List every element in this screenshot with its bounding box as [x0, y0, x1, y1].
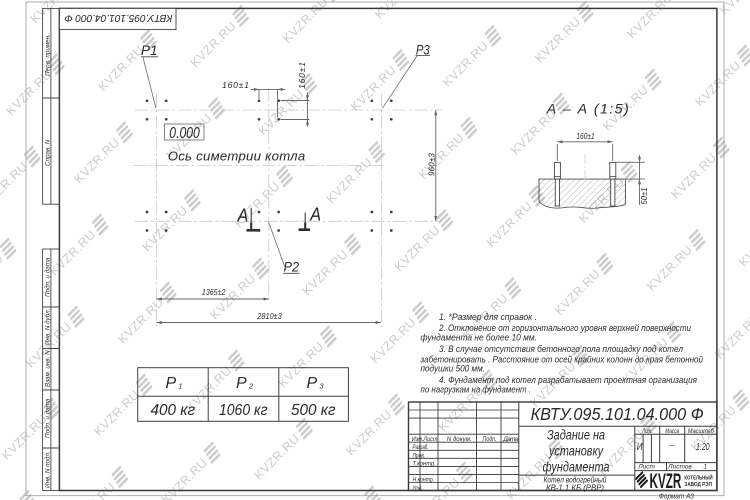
svg-text:2810±3: 2810±3	[256, 312, 282, 321]
svg-text:Инв. N подл.: Инв. N подл.	[44, 451, 52, 488]
svg-text:Н.контр.: Н.контр.	[413, 477, 435, 484]
svg-text:Ось симетрии котла: Ось симетрии котла	[168, 149, 306, 164]
svg-text:Подп. и дата: Подп. и дата	[44, 257, 52, 297]
svg-text:0.000: 0.000	[169, 125, 200, 142]
svg-text:1:20: 1:20	[696, 441, 710, 453]
svg-text:Утв.: Утв.	[412, 485, 423, 492]
svg-text:N докум.: N докум.	[447, 435, 472, 443]
svg-text:Р: Р	[307, 375, 318, 392]
svg-text:КВТУ.095.101.04.000 Ф: КВТУ.095.101.04.000 Ф	[531, 404, 704, 424]
svg-text:Р3: Р3	[416, 42, 430, 57]
svg-text:160±1: 160±1	[576, 131, 594, 141]
svg-text:960±3: 960±3	[428, 152, 437, 176]
svg-text:1: 1	[178, 382, 182, 391]
svg-text:400 кг: 400 кг	[151, 402, 196, 419]
svg-text:160±1: 160±1	[222, 80, 249, 90]
svg-text:Масштаб: Масштаб	[688, 427, 714, 435]
svg-text:4. Фундамент под котел разраб: 4. Фундамент под котел разрабатывает про…	[439, 375, 697, 385]
svg-text:KVZR: KVZR	[650, 468, 682, 493]
svg-text:–: –	[669, 440, 676, 450]
svg-text:Задание на: Задание на	[547, 428, 605, 443]
svg-text:установку: установку	[548, 444, 604, 459]
svg-text:по нагрузкам на фундамент .: по нагрузкам на фундамент .	[421, 385, 532, 395]
svg-text:Р2: Р2	[284, 260, 300, 275]
svg-text:И: И	[637, 442, 643, 453]
svg-text:1. *Размер для справок .: 1. *Размер для справок .	[439, 312, 537, 322]
svg-text:1060 кг: 1060 кг	[219, 402, 268, 419]
svg-text:Подп. и дата: Подп. и дата	[44, 398, 52, 438]
svg-text:А: А	[309, 205, 321, 225]
svg-text:фундамента не более 10 мм.: фундамента не более 10 мм.	[421, 332, 538, 342]
svg-text:Справ. N: Справ. N	[45, 139, 52, 166]
svg-text:Формат А3: Формат А3	[659, 492, 695, 500]
svg-text:160±1: 160±1	[297, 62, 307, 89]
svg-text:Разраб.: Разраб.	[413, 443, 429, 451]
svg-text:Пров.: Пров.	[413, 452, 426, 459]
svg-text:1365±2: 1365±2	[202, 288, 226, 297]
svg-text:3. В случае отсутствия бетонн: 3. В случае отсутствия бетонного пола пл…	[439, 344, 683, 354]
svg-text:Перв. примен.: Перв. примен.	[45, 34, 52, 76]
svg-text:Инв. N дубл.: Инв. N дубл.	[44, 309, 52, 345]
svg-text:Изм.Лист: Изм.Лист	[412, 436, 438, 443]
svg-text:КВТУ.095.101.04.000 Ф: КВТУ.095.101.04.000 Ф	[65, 12, 173, 23]
svg-text:Лит.: Лит.	[641, 428, 652, 435]
svg-text:ЗАВОД РЭП: ЗАВОД РЭП	[684, 482, 712, 488]
svg-text:фундамента: фундамента	[543, 460, 610, 475]
svg-text:Р1: Р1	[141, 43, 158, 58]
svg-text:Т.контр.: Т.контр.	[413, 461, 436, 468]
svg-text:Взам. инв. N: Взам. инв. N	[45, 350, 52, 387]
svg-text:2: 2	[248, 382, 254, 391]
svg-text:1: 1	[703, 464, 707, 471]
svg-text:А: А	[237, 206, 249, 226]
svg-text:КОТЕЛЬНЫЙ: КОТЕЛЬНЫЙ	[684, 473, 713, 481]
svg-text:Р: Р	[236, 375, 247, 392]
svg-text:50±1: 50±1	[639, 188, 649, 205]
svg-text:Дата: Дата	[502, 436, 518, 443]
svg-text:Подп.: Подп.	[483, 435, 497, 443]
svg-text:Масса: Масса	[665, 428, 679, 435]
svg-text:500 кг: 500 кг	[291, 402, 336, 419]
svg-text:КВ-1,1 КБ (РВР): КВ-1,1 КБ (РВР)	[546, 484, 604, 493]
svg-text:Р: Р	[166, 375, 177, 392]
svg-text:подушки 500 мм.: подушки 500 мм.	[421, 363, 486, 373]
